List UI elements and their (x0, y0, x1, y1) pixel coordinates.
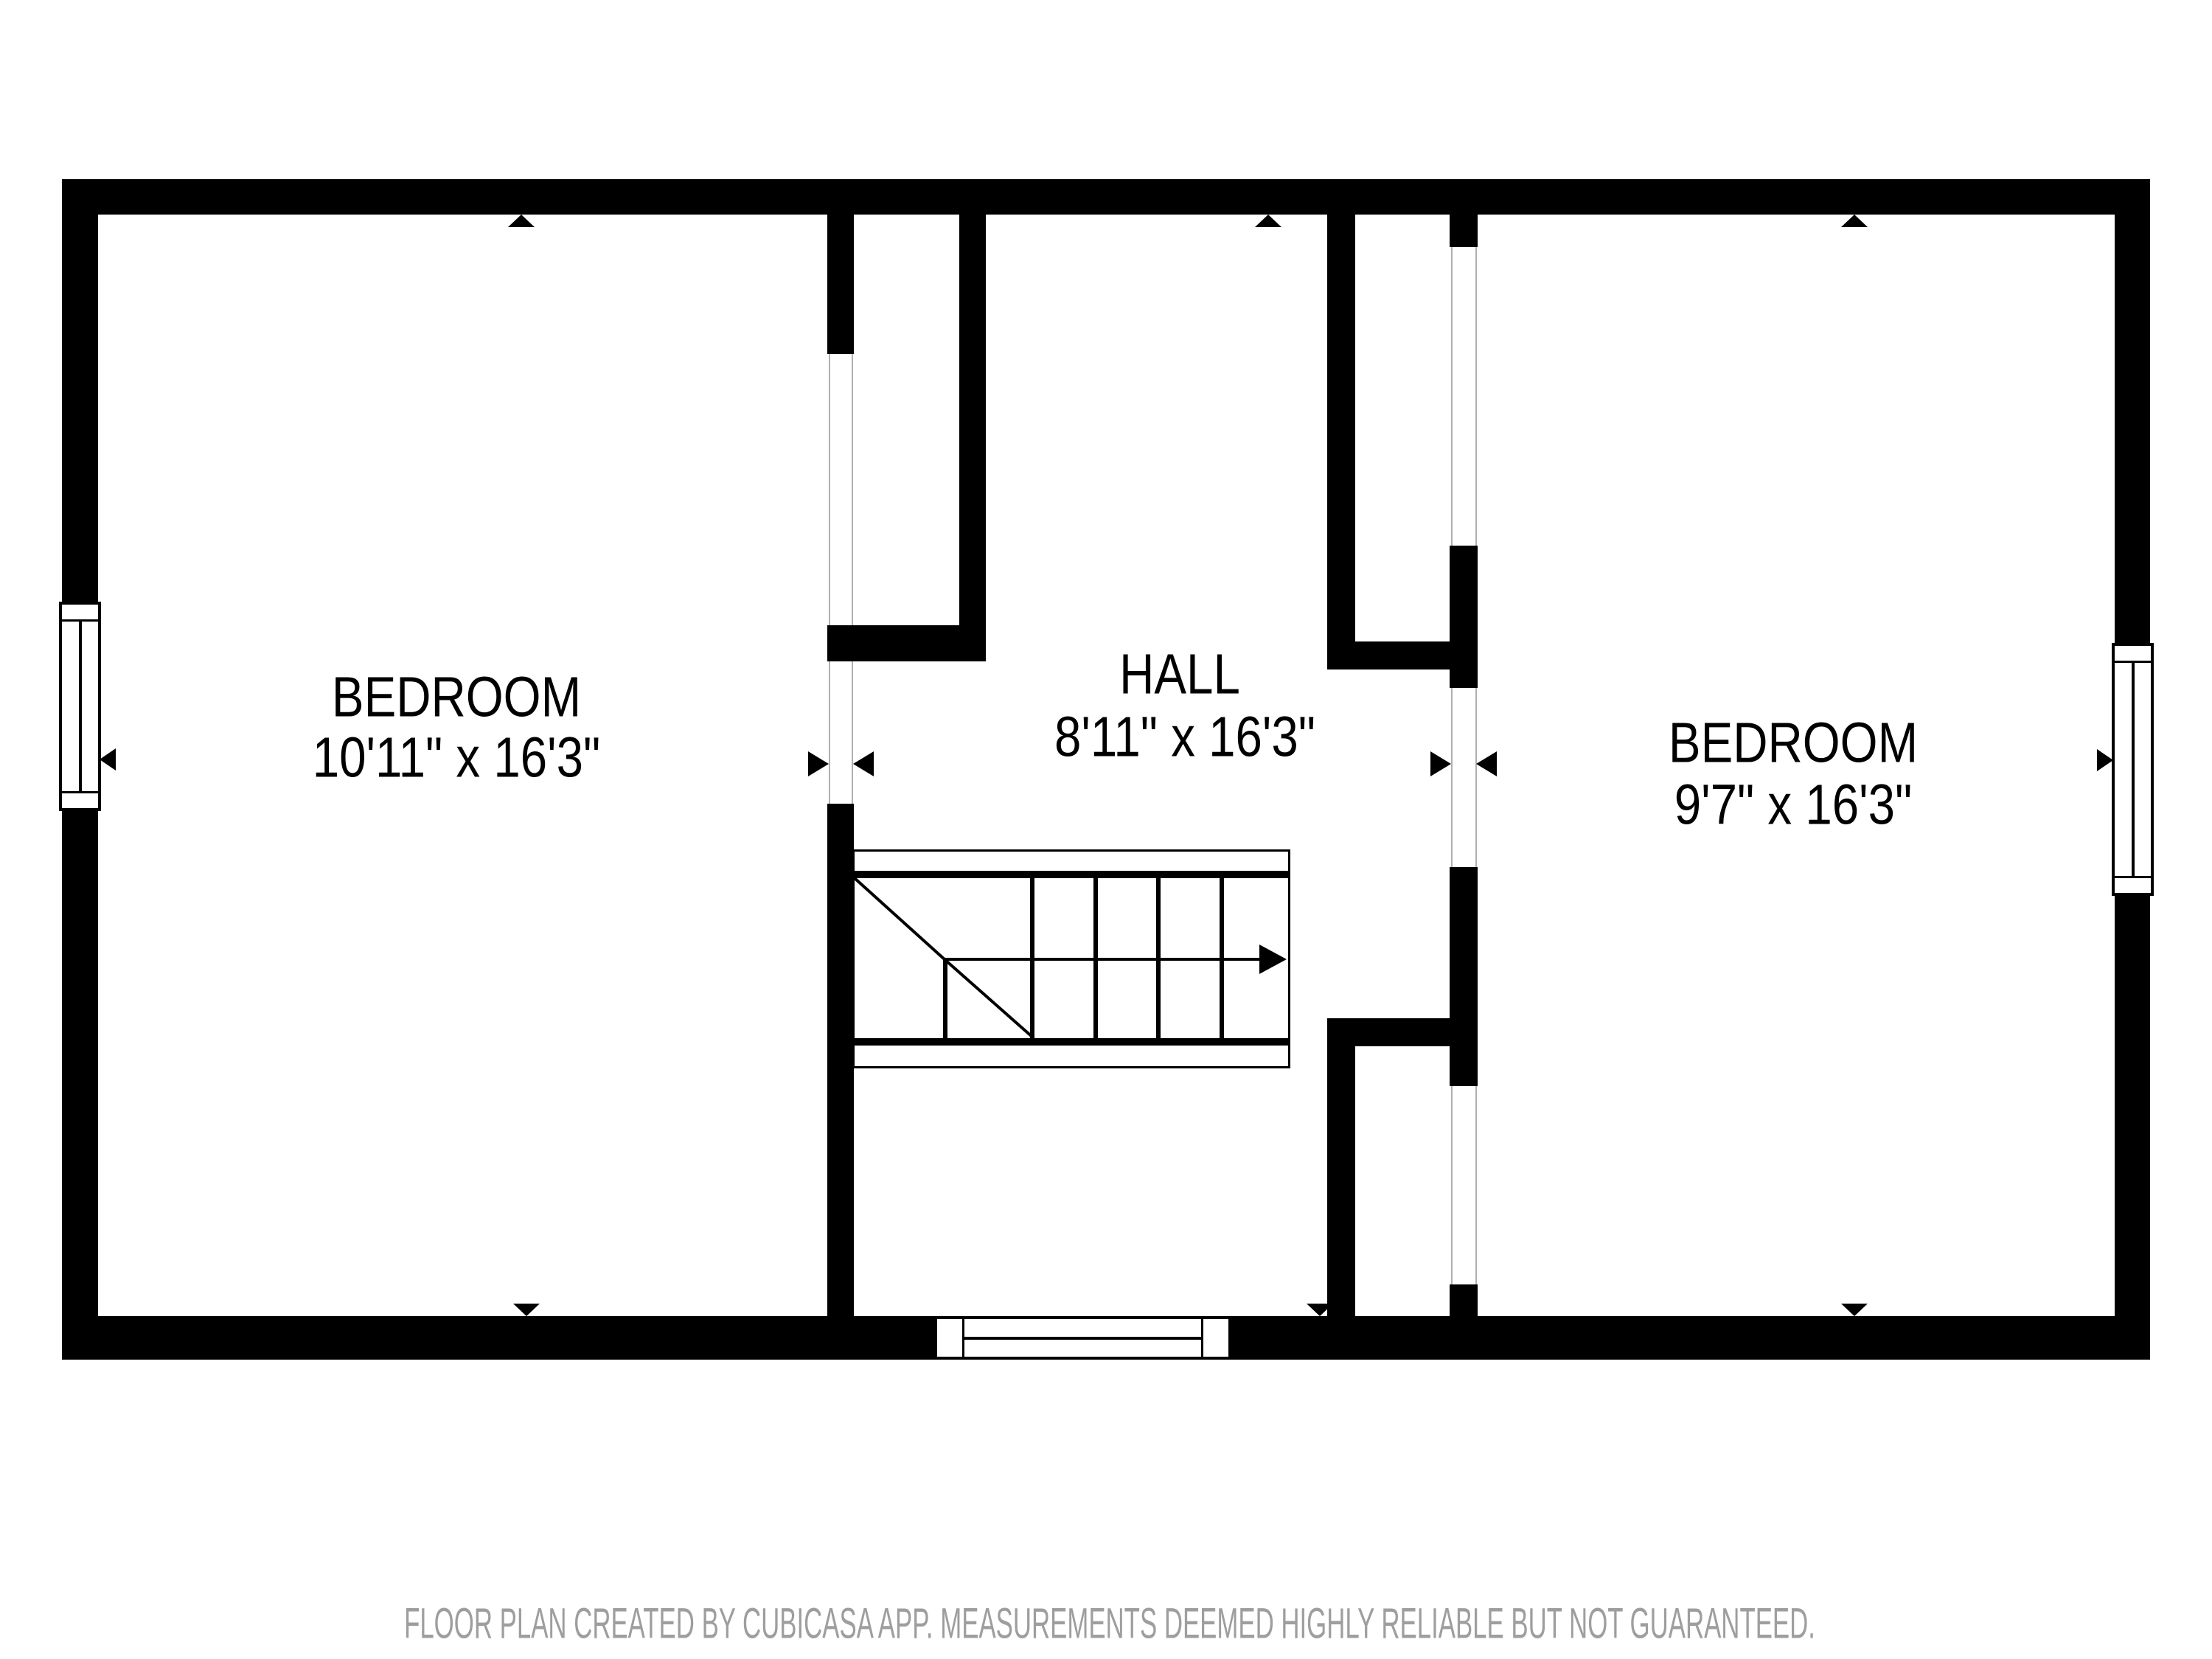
opening-arrow-left-icon (1476, 751, 1497, 776)
opening-line (829, 661, 830, 804)
staircase (852, 849, 1290, 1068)
opening-line (852, 354, 853, 625)
wall-marker-up-icon (1255, 215, 1281, 227)
wall-right-partition-bottom-stub (1450, 1284, 1478, 1316)
opening-line (1451, 247, 1453, 546)
wall-closet-left-east (959, 215, 986, 661)
footer-disclaimer: FLOOR PLAN CREATED BY CUBICASA APP. MEAS… (404, 1599, 1815, 1649)
opening-arrow-right-icon (1430, 751, 1451, 776)
wall-marker-up-icon (1841, 215, 1868, 227)
wall-marker-up-icon (508, 215, 535, 227)
wall-marker-down-icon (1307, 1304, 1333, 1316)
right-wall-window (2112, 643, 2154, 896)
room-label-bedroom-left: BEDROOM (332, 665, 581, 731)
wall-right-partition-low (1450, 867, 1478, 1086)
wall-closet-rtop-west (1327, 215, 1355, 669)
wall-marker-down-icon (513, 1304, 540, 1316)
wall-marker-down-icon (1841, 1304, 1868, 1316)
room-dimensions-bedroom-right: 9'7" x 16'3" (1674, 773, 1913, 838)
room-label-bedroom-right: BEDROOM (1669, 711, 1918, 776)
opening-line (1475, 247, 1477, 546)
opening-arrow-left-icon (853, 751, 874, 776)
bottom-wall-window (934, 1316, 1231, 1360)
stair-direction-arrow-head-icon (1259, 945, 1287, 974)
opening-arrow-right-icon (808, 751, 829, 776)
room-dimensions-bedroom-left: 10'11" x 16'3" (313, 726, 600, 791)
wall-closet-left-south (827, 625, 986, 661)
opening-line (852, 661, 853, 804)
wall-closet-rbot-west (1327, 1018, 1355, 1316)
window-arrow-left-icon (100, 748, 116, 771)
wall-right-partition-mid (1450, 546, 1478, 688)
room-label-hall: HALL (1119, 642, 1240, 708)
wall-closet-left-west-upper (827, 215, 854, 354)
opening-line (1475, 688, 1477, 867)
opening-line (1475, 1086, 1477, 1284)
opening-line (829, 354, 830, 625)
room-dimensions-hall: 8'11" x 16'3" (1054, 705, 1315, 771)
floor-plan: BEDROOM 10'11" x 16'3" HALL 8'11" x 16'3… (0, 0, 2212, 1659)
wall-right-partition-top-stub (1450, 215, 1478, 247)
wall-left-partition-lower (827, 804, 854, 1316)
opening-line (1451, 1086, 1453, 1284)
left-wall-window (59, 602, 101, 811)
wall-outer-top (63, 179, 2150, 215)
window-arrow-right-icon (2097, 749, 2113, 771)
opening-line (1451, 688, 1453, 867)
